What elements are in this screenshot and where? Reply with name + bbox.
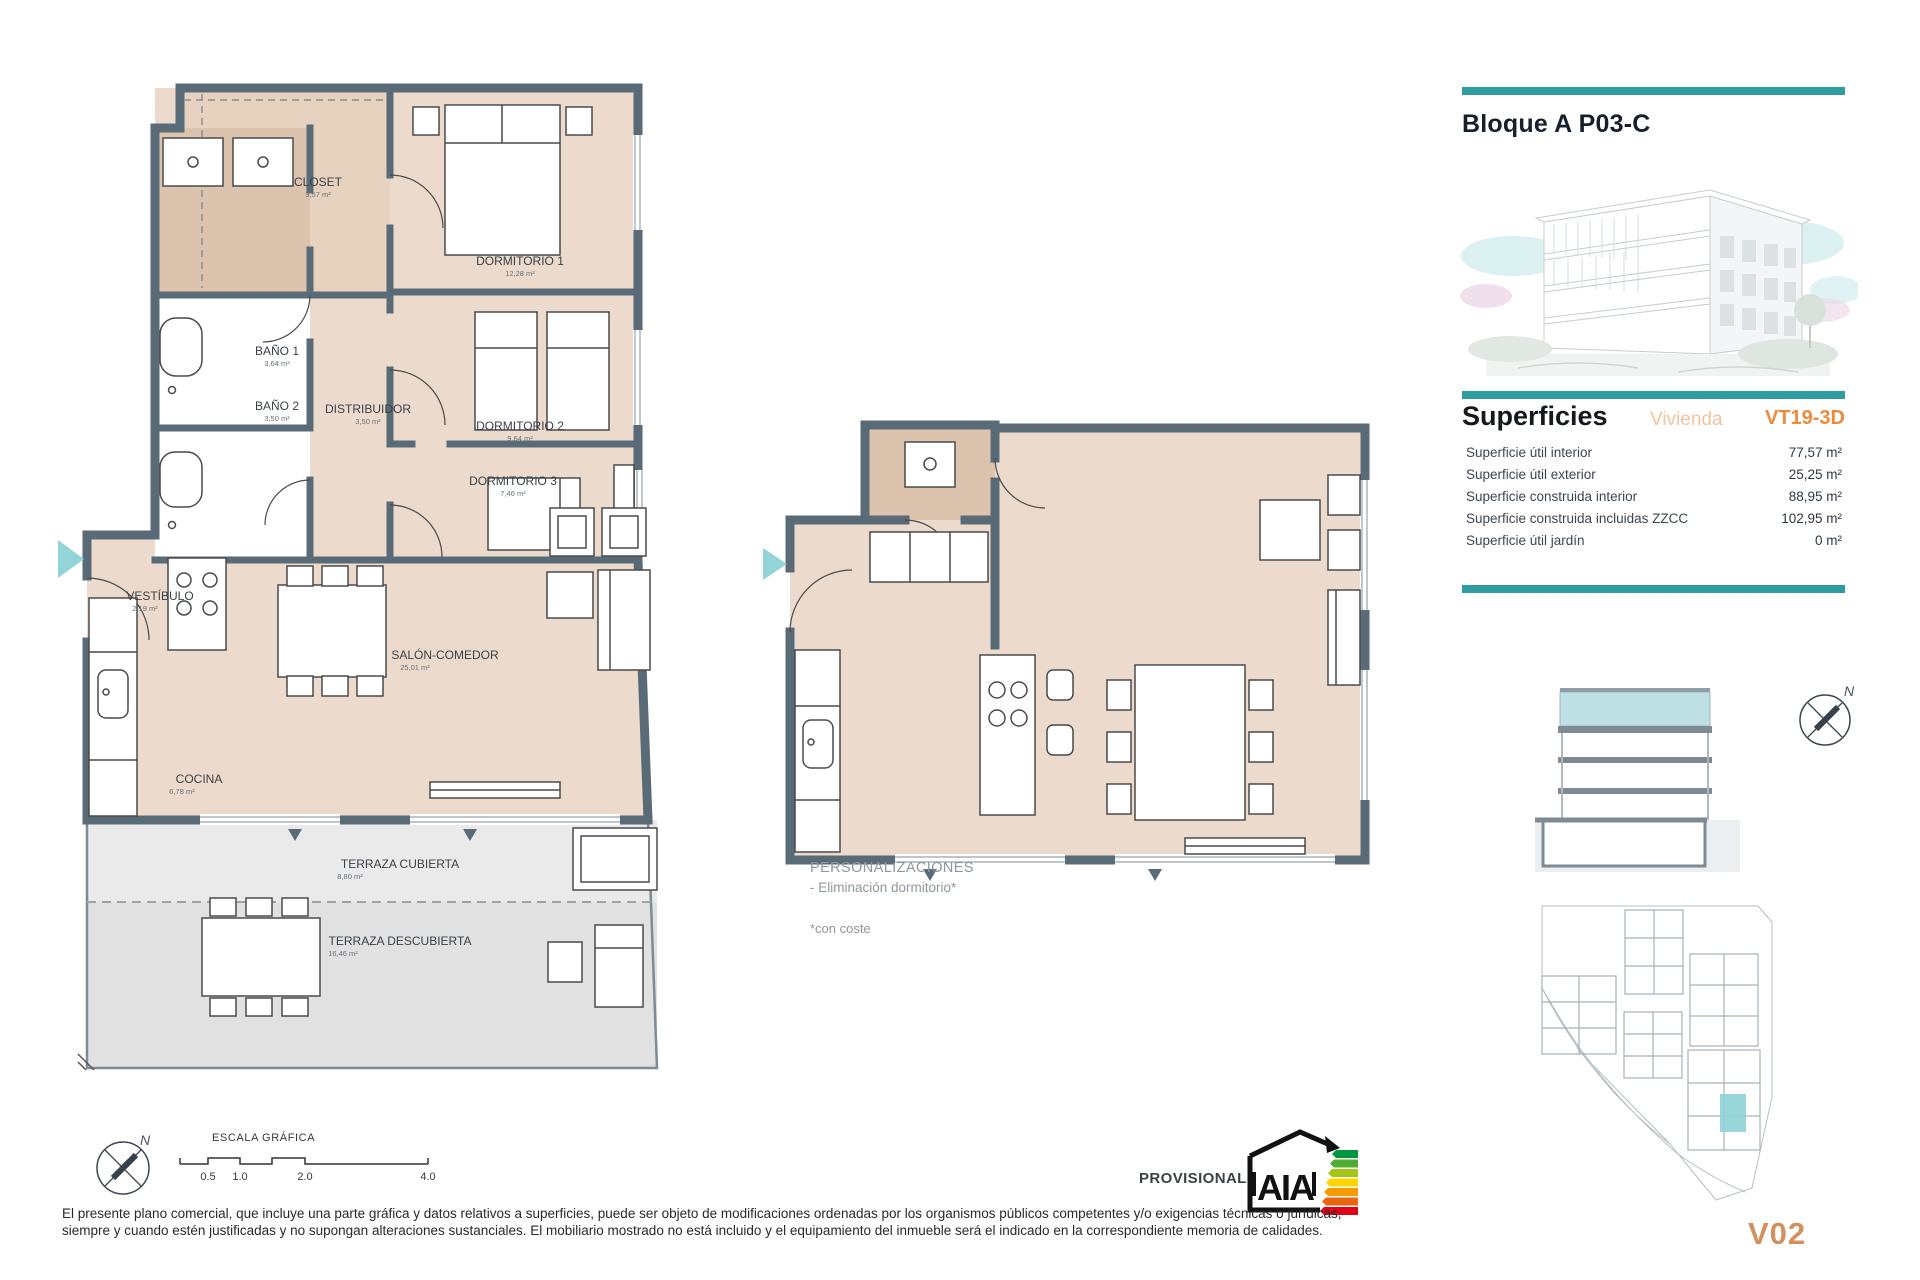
room-label: COCINA: [176, 772, 223, 786]
open-terrace-floor: [87, 902, 657, 1068]
logo-strip: [1252, 1172, 1256, 1196]
room-label: TERRAZA DESCUBIERTA: [329, 934, 472, 948]
alt-terrace-door-arrow: [1148, 869, 1162, 881]
building-section-diagram: [1535, 678, 1740, 873]
room-area: 3,57 m²: [305, 190, 331, 199]
scale-tick: 4.0: [420, 1171, 435, 1183]
table-row: Superficie construida interior 88,95 m²: [1466, 489, 1842, 511]
room-area: 3,50 m²: [355, 417, 381, 426]
alt-entry-arrow: [763, 548, 787, 580]
table-row: Superficie útil jardín 0 m²: [1466, 533, 1842, 555]
superficies-heading: Superficies: [1462, 401, 1608, 432]
row-value: 0 m²: [1815, 533, 1842, 555]
scale-ticks: 0.5 1.0 2.0 4.0: [200, 1171, 435, 1183]
superficies-table: Superficie útil interior 77,57 m² Superf…: [1466, 445, 1842, 555]
provisional-label: PROVISIONAL: [1139, 1170, 1247, 1187]
room-area: 8,80 m²: [337, 872, 363, 881]
room-label: DORMITORIO 1: [476, 254, 564, 268]
room-label: BAÑO 2: [255, 399, 299, 413]
floor-slab: [1558, 788, 1712, 794]
room-area: 7,46 m²: [500, 489, 526, 498]
site-highlighted-unit: [1720, 1094, 1746, 1132]
plan-sheet: CLOSET 3,57 m² DORMITORIO 1 12,28 m² BAÑ…: [0, 0, 1920, 1280]
highlighted-floor: [1560, 692, 1710, 726]
compass-rose: N: [1792, 682, 1862, 752]
room-area: 12,28 m²: [505, 269, 535, 278]
room-area: 3,64 m²: [264, 359, 290, 368]
room-label: TERRAZA CUBIERTA: [341, 857, 459, 871]
unit-code: VT19-3D: [1765, 407, 1845, 430]
floor-slab: [1558, 726, 1712, 733]
room-area: 9,64 m²: [507, 434, 533, 443]
entry-arrow: [58, 540, 84, 578]
top-rule: [1462, 87, 1845, 95]
building: [1536, 190, 1810, 354]
graphic-scale-bar: 0.5 1.0 2.0 4.0: [175, 1150, 440, 1190]
room-area: 16,46 m²: [328, 949, 358, 958]
energy-logo-text: AIA: [1257, 1167, 1315, 1208]
mid-rule: [1462, 391, 1845, 399]
room-area: 2,19 m²: [132, 604, 158, 613]
section-columns: [1562, 733, 1708, 820]
scale-tick: 2.0: [297, 1171, 312, 1183]
room-label: SALÓN-COMEDOR: [391, 647, 499, 662]
row-value: 88,95 m²: [1789, 489, 1842, 511]
personalizaciones-block: PERSONALIZACIONES - Eliminación dormitor…: [810, 860, 974, 936]
house-roof: [1250, 1132, 1330, 1156]
row-label: Superficie útil jardín: [1466, 533, 1585, 555]
scale-tick: 1.0: [232, 1171, 247, 1183]
table-row: Superficie útil interior 77,57 m²: [1466, 445, 1842, 467]
site-plan: [1520, 892, 1810, 1212]
compass-rose: N: [90, 1132, 160, 1202]
row-label: Superficie útil exterior: [1466, 467, 1596, 489]
row-value: 25,25 m²: [1789, 467, 1842, 489]
room-label: DORMITORIO 2: [476, 419, 564, 433]
superficies-header: Superficies Vivienda VT19-3D: [1462, 401, 1845, 437]
row-label: Superficie útil interior: [1466, 445, 1592, 467]
north-label: N: [1844, 683, 1855, 699]
room-label: DISTRIBUIDOR: [325, 402, 411, 416]
table-row: Superficie construida incluidas ZZCC 102…: [1466, 511, 1842, 533]
row-label: Superficie construida interior: [1466, 489, 1637, 511]
superficies-subheading: Vivienda: [1650, 409, 1723, 431]
room-area: 25,01 m²: [400, 663, 430, 672]
legal-disclaimer: El presente plano comercial, que incluye…: [62, 1206, 1367, 1239]
main-floor-plan: CLOSET 3,57 m² DORMITORIO 1 12,28 m² BAÑ…: [50, 80, 670, 1085]
version-label: V02: [1748, 1216, 1806, 1252]
room-label: CLOSET: [294, 175, 343, 189]
row-value: 77,57 m²: [1789, 445, 1842, 467]
room-label: BAÑO 1: [255, 344, 299, 358]
row-label: Superficie construida incluidas ZZCC: [1466, 511, 1688, 533]
north-label: N: [140, 1132, 151, 1148]
building-illustration: [1458, 158, 1858, 390]
scale-tick: 0.5: [200, 1171, 215, 1183]
page-title: Bloque A P03-C: [1462, 110, 1650, 139]
scale-label: ESCALA GRÁFICA: [212, 1132, 315, 1144]
room-area: 6,78 m²: [169, 787, 195, 796]
row-value: 102,95 m²: [1781, 511, 1842, 533]
energy-certificate-logo: AIA: [1240, 1120, 1360, 1215]
table-row: Superficie útil exterior 25,25 m²: [1466, 467, 1842, 489]
floor-slab: [1558, 757, 1712, 763]
room-label: DORMITORIO 3: [469, 474, 557, 488]
personalizaciones-item: - Eliminación dormitorio*: [810, 880, 974, 895]
personalizaciones-note: *con coste: [810, 921, 974, 936]
basement: [1543, 820, 1705, 866]
personalizaciones-title: PERSONALIZACIONES: [810, 860, 974, 876]
alternative-floor-plan: [755, 420, 1380, 890]
bottom-rule: [1462, 585, 1845, 593]
site-boundary: [1542, 906, 1772, 1200]
room-area: 3,50 m²: [264, 414, 290, 423]
room-label: VESTÍBULO: [126, 588, 193, 603]
